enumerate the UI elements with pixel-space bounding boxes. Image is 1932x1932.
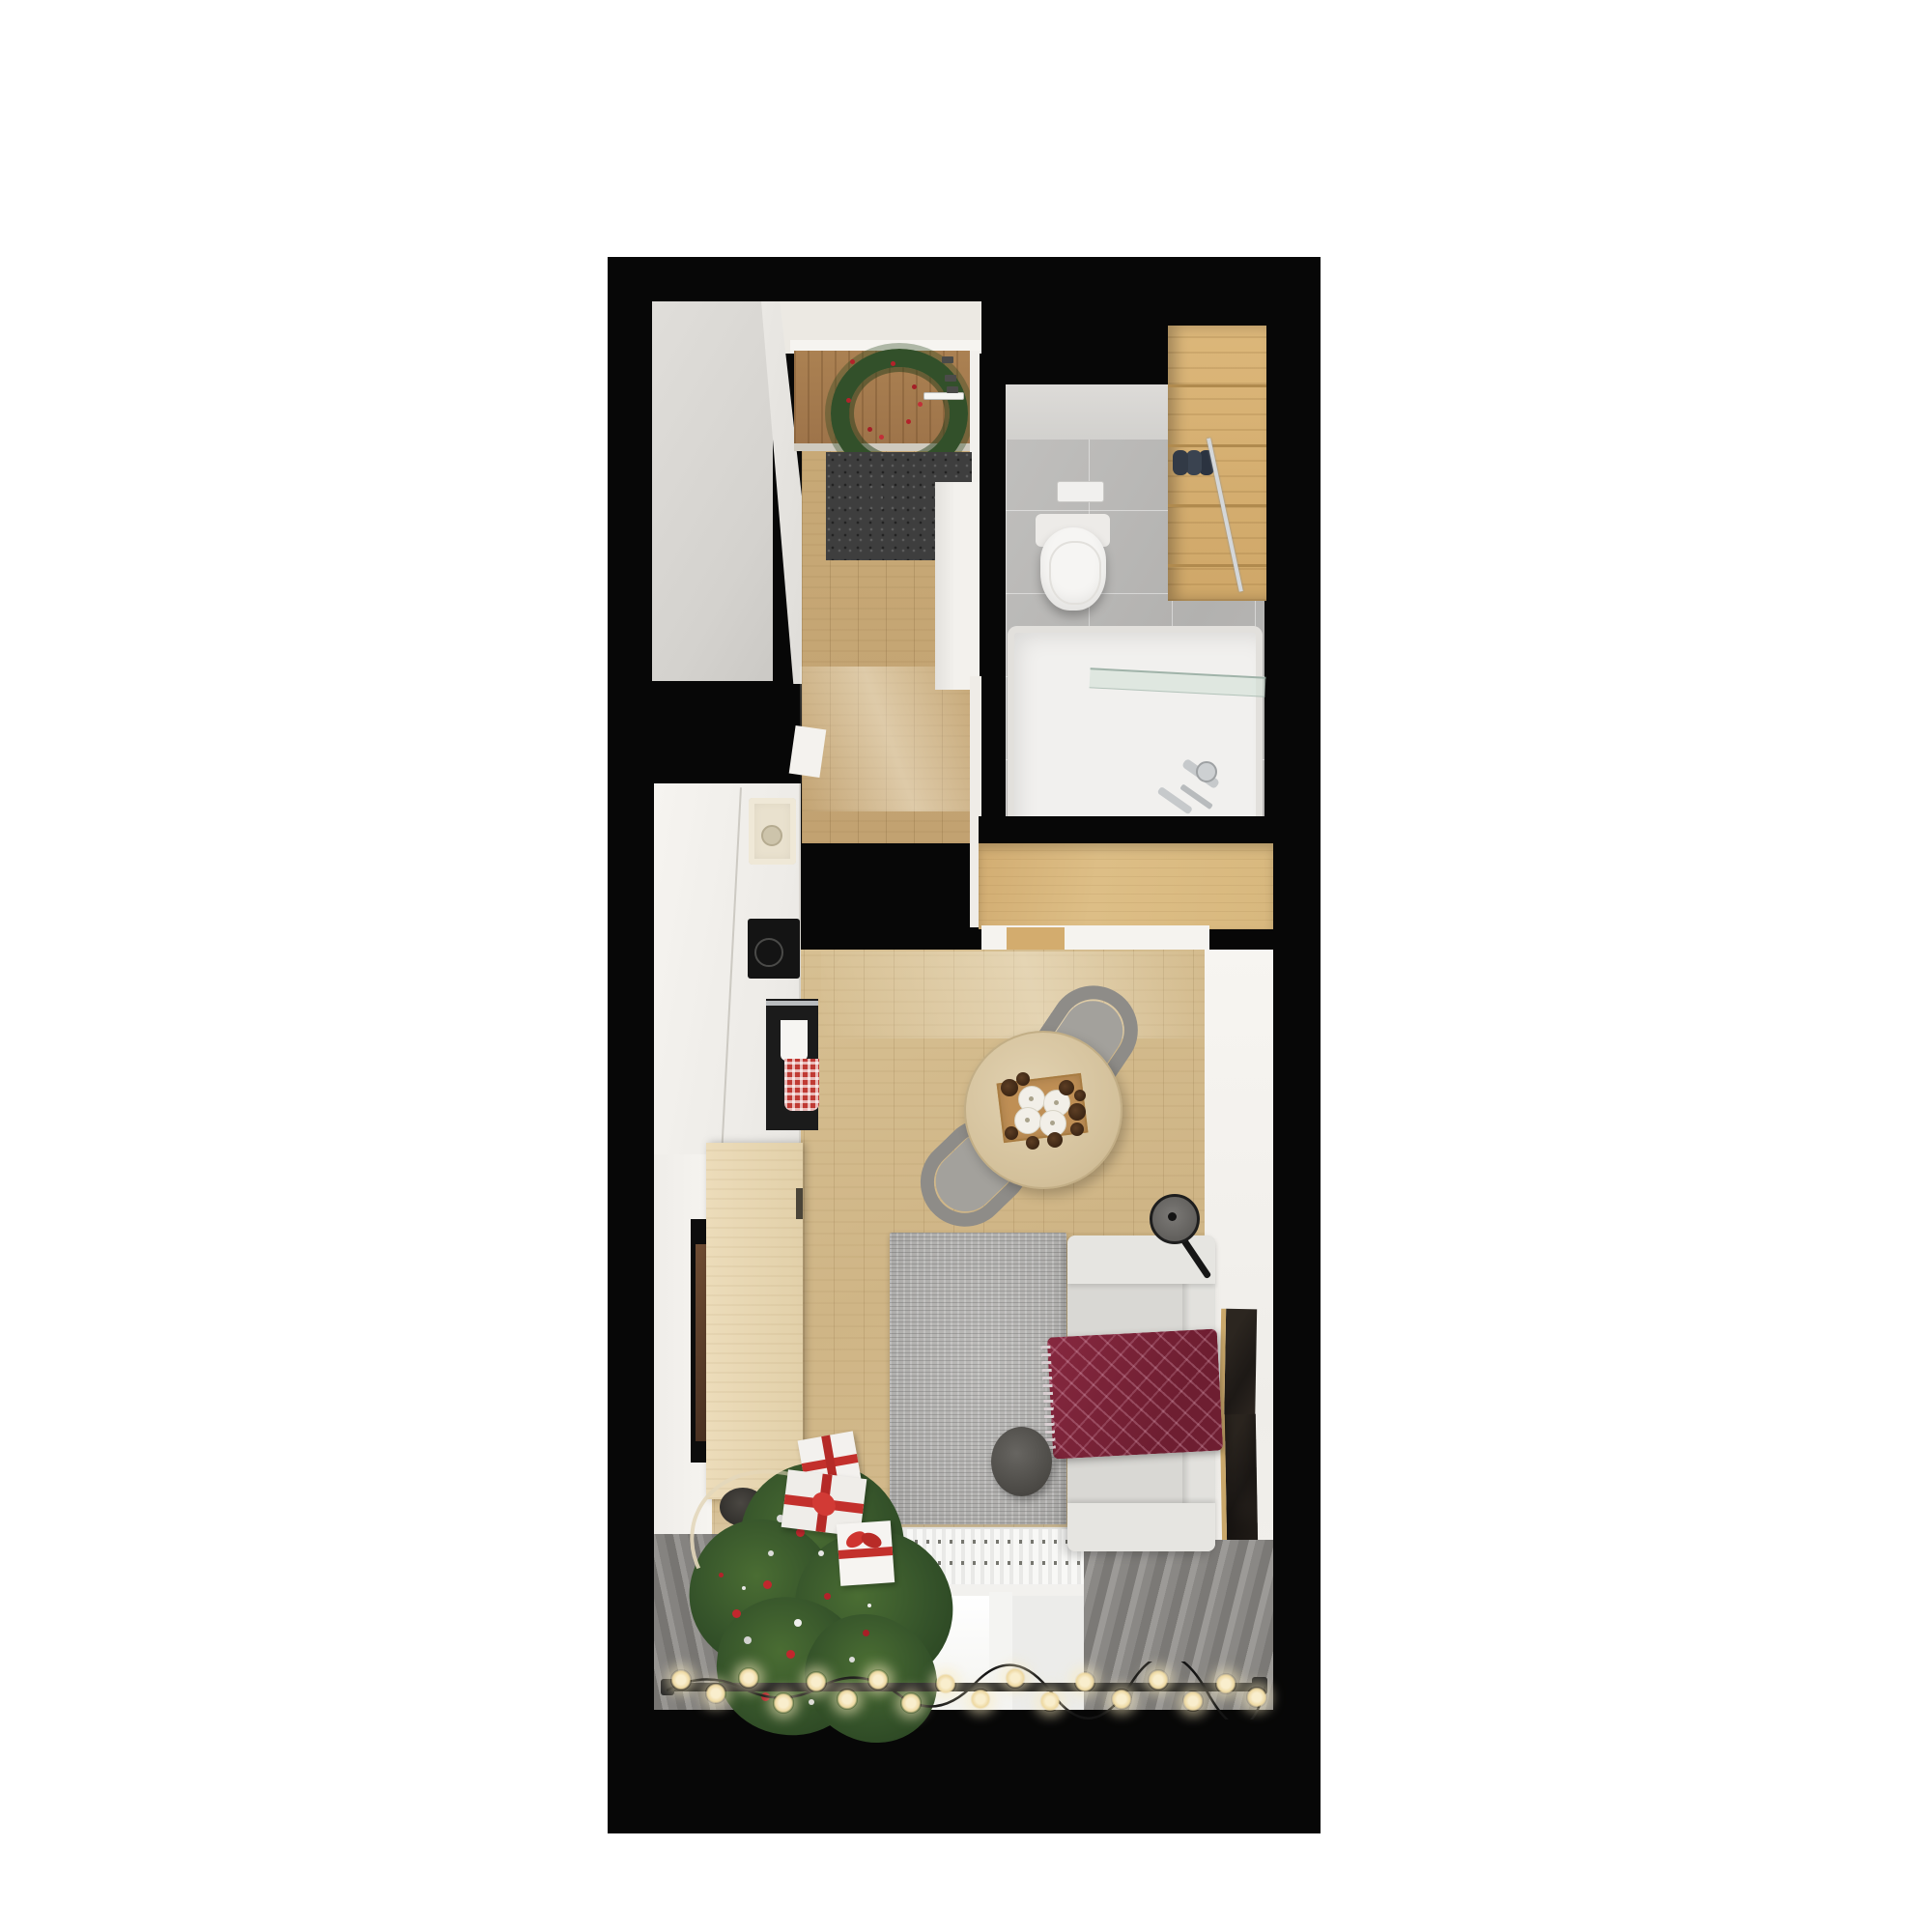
string-light-bulb [1246,1687,1267,1708]
string-light-bulb [837,1689,858,1710]
pinecone [1016,1072,1030,1086]
pinecone [1070,1122,1084,1136]
cooktop-burner-ring [754,938,783,967]
red-checkered-towel [784,1059,819,1111]
gift-ribbon [838,1547,893,1559]
wall-art-frame [1220,1414,1258,1548]
string-light-bulb [670,1669,692,1690]
floor-lamp-bulb-center [1168,1212,1177,1221]
string-light-bulb [705,1683,726,1704]
string-light-bulb [970,1689,991,1710]
wreath-berries [850,359,855,364]
string-light-bulb [1039,1690,1061,1712]
door-hinge [942,356,953,363]
floor-plan-render [0,0,1932,1932]
gift-bow [808,1488,840,1520]
pouf [991,1427,1052,1496]
string-light-bulb [1005,1667,1026,1689]
shelf-divider [1168,384,1266,387]
pinecone [1005,1126,1018,1140]
string-light-bulb [935,1673,956,1694]
string-light-bulb [738,1667,759,1689]
candle [1014,1107,1041,1134]
string-light-bulb [900,1692,922,1714]
hall-cabinet [935,482,980,690]
bath-faucet-head [1196,761,1217,782]
wall-closet-front-wood [1007,927,1065,951]
wall-closet-top [979,843,1273,929]
flush-plate [1057,481,1104,502]
pinecone [1074,1090,1086,1101]
towel-rolls [1173,450,1188,475]
string-light-bulb [1182,1690,1204,1712]
string-light-bulb [806,1671,827,1692]
sideboard-handle [796,1188,803,1219]
pinecone [1059,1080,1074,1095]
string-light-bulb [773,1692,794,1714]
sofa-armrest [1067,1503,1215,1551]
bathtub [1008,626,1263,841]
string-light-bulb [1148,1669,1169,1690]
wardrobe [652,301,773,681]
hall-bathroom-wall [980,354,1007,843]
pinecone [1068,1103,1086,1121]
pinecone [1001,1079,1018,1096]
toilet-seat-line [1049,541,1101,605]
bathroom-bottom-wall [979,816,1273,843]
oven-handle [766,1001,818,1006]
throw-blanket [1047,1328,1223,1459]
string-light-bulb [1111,1689,1132,1710]
string-light-bulb [1074,1671,1095,1692]
sink-drain [761,825,782,846]
gift-box [837,1520,895,1586]
door-handle [923,392,964,400]
pinecone [1026,1136,1039,1150]
string-light-bulb [1215,1673,1236,1694]
tree-ornaments-silver [682,1457,690,1464]
string-light-bulb [867,1669,889,1690]
pinecone [1047,1132,1063,1148]
tv-sideboard [706,1143,803,1499]
white-kitchen-towel [781,1020,808,1061]
